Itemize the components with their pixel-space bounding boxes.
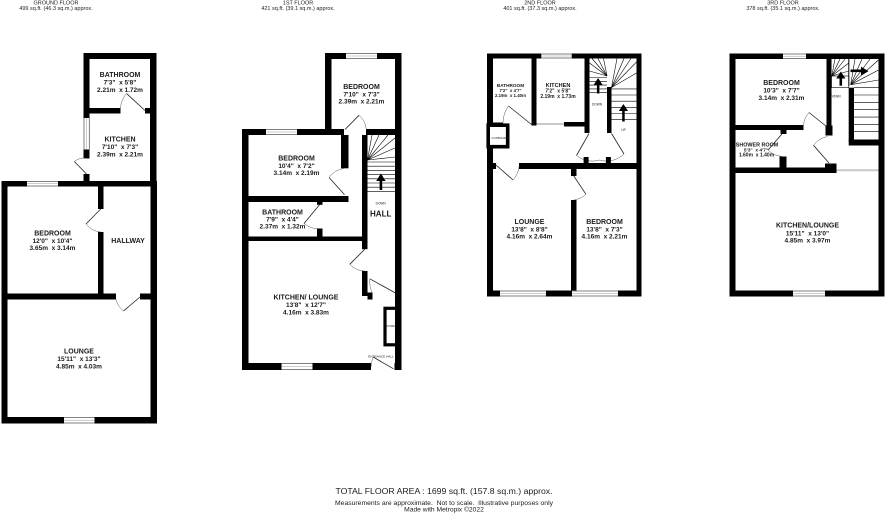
svg-text:7'9" x 4'4": 7'9" x 4'4": [266, 217, 299, 224]
svg-text:10'4" x 7'2": 10'4" x 7'2": [278, 163, 314, 170]
svg-text:TOTAL FLOOR AREA : 1699 sq.ft.: TOTAL FLOOR AREA : 1699 sq.ft. (157.8 sq…: [335, 486, 552, 496]
svg-text:BATHROOM: BATHROOM: [262, 210, 303, 217]
svg-text:10'3" x 7'7": 10'3" x 7'7": [763, 88, 799, 95]
svg-text:KITCHEN: KITCHEN: [104, 137, 135, 144]
svg-text:13'8" x 12'7": 13'8" x 12'7": [286, 302, 326, 309]
svg-text:2.37m x 1.32m: 2.37m x 1.32m: [260, 224, 306, 231]
svg-text:15'11" x 13'0": 15'11" x 13'0": [786, 230, 829, 237]
svg-text:13'8" x 7'3": 13'8" x 7'3": [586, 226, 622, 233]
svg-text:7'3" x 5'8": 7'3" x 5'8": [104, 80, 137, 87]
svg-text:SHOWER ROOM: SHOWER ROOM: [736, 142, 779, 148]
svg-text:DOWN: DOWN: [376, 202, 387, 206]
svg-text:STORE: STORE: [386, 324, 395, 328]
svg-text:4.85m x 4.03m: 4.85m x 4.03m: [56, 363, 102, 370]
svg-text:3.65m x 3.14m: 3.65m x 3.14m: [30, 245, 76, 252]
svg-text:401 sq.ft. (37.3 sq.m.) approx: 401 sq.ft. (37.3 sq.m.) approx.: [503, 6, 577, 12]
svg-text:7'10" x 7'3": 7'10" x 7'3": [102, 144, 138, 151]
svg-text:2.39m x 2.21m: 2.39m x 2.21m: [97, 151, 143, 158]
svg-text:7'10" x 7'3": 7'10" x 7'3": [343, 91, 379, 98]
svg-text:LOUNGE: LOUNGE: [64, 349, 94, 356]
svg-text:KITCHEN/ LOUNGE: KITCHEN/ LOUNGE: [274, 295, 339, 302]
svg-text:BEDROOM: BEDROOM: [34, 231, 71, 238]
svg-text:KITCHEN/LOUNGE: KITCHEN/LOUNGE: [776, 223, 839, 230]
svg-text:2.21m x 1.72m: 2.21m x 1.72m: [97, 87, 143, 94]
svg-text:3.14m x 2.19m: 3.14m x 2.19m: [274, 170, 320, 177]
svg-text:BATHROOM: BATHROOM: [100, 72, 141, 79]
svg-text:2.19m x 1.40m: 2.19m x 1.40m: [495, 93, 526, 98]
svg-text:BEDROOM: BEDROOM: [343, 84, 380, 91]
svg-text:1.60m x 1.40m: 1.60m x 1.40m: [739, 153, 775, 159]
svg-text:HALL: HALL: [370, 210, 391, 219]
svg-text:CUPBOARD: CUPBOARD: [491, 136, 509, 140]
svg-text:4.16m x 3.83m: 4.16m x 3.83m: [283, 309, 329, 316]
svg-text:13'8" x 8'8": 13'8" x 8'8": [511, 226, 547, 233]
svg-text:2.19m x 1.73m: 2.19m x 1.73m: [540, 94, 576, 100]
svg-text:DOWN: DOWN: [830, 94, 841, 98]
svg-text:Made with Metropix ©2022: Made with Metropix ©2022: [404, 505, 484, 513]
svg-text:4.85m x 3.97m: 4.85m x 3.97m: [785, 238, 831, 245]
svg-text:LOUNGE: LOUNGE: [515, 219, 545, 226]
svg-text:DOWN: DOWN: [592, 103, 603, 107]
svg-text:4.16m x 2.64m: 4.16m x 2.64m: [507, 234, 553, 241]
svg-text:378 sq.ft. (35.1 sq.m.) approx: 378 sq.ft. (35.1 sq.m.) approx.: [746, 6, 820, 12]
svg-text:3.14m x 2.31m: 3.14m x 2.31m: [759, 95, 805, 102]
svg-text:2.39m x 2.21m: 2.39m x 2.21m: [339, 99, 385, 106]
svg-text:4.16m x 2.21m: 4.16m x 2.21m: [582, 234, 628, 241]
svg-text:HALLWAY: HALLWAY: [111, 238, 145, 245]
svg-text:UP: UP: [621, 128, 625, 132]
svg-text:BEDROOM: BEDROOM: [278, 156, 315, 163]
svg-text:499 sq.ft. (46.3 sq.m.) approx: 499 sq.ft. (46.3 sq.m.) approx.: [19, 6, 93, 12]
svg-text:12'0" x 10'4": 12'0" x 10'4": [33, 238, 73, 245]
svg-text:15'11" x 13'3": 15'11" x 13'3": [57, 356, 100, 363]
svg-text:BEDROOM: BEDROOM: [586, 219, 623, 226]
svg-text:BEDROOM: BEDROOM: [763, 80, 800, 87]
svg-text:ENTRANCE HALL: ENTRANCE HALL: [368, 354, 394, 358]
svg-text:421 sq.ft. (39.1 sq.m.) approx: 421 sq.ft. (39.1 sq.m.) approx.: [261, 6, 335, 12]
